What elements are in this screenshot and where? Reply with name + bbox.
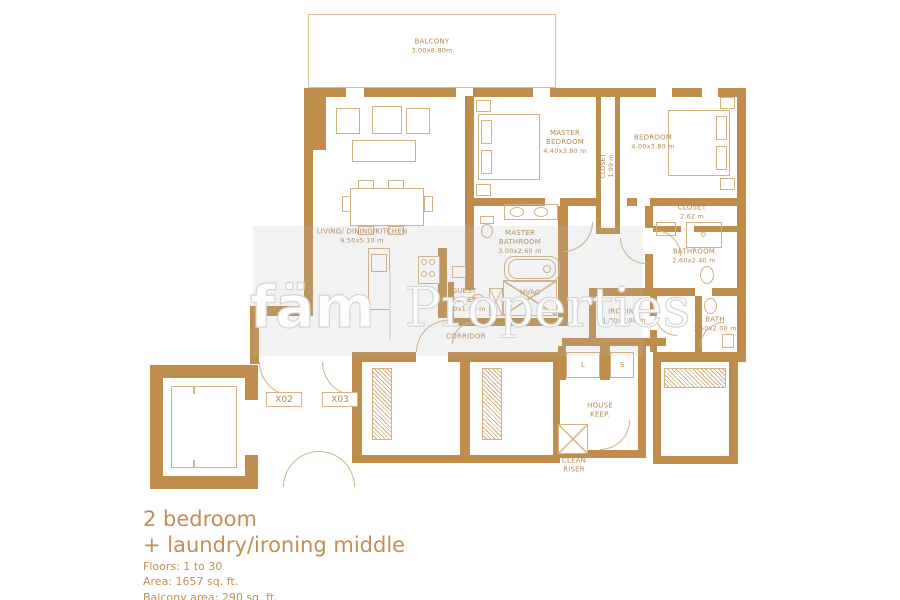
dining-chair <box>388 180 404 189</box>
master-bedroom-l1: MASTER <box>543 129 586 138</box>
unit-floors: Floors: 1 to 30 <box>143 559 405 575</box>
house-keep-l1: HOUSE <box>587 401 613 410</box>
wall <box>653 352 746 362</box>
dining-chair <box>424 196 433 212</box>
unit-area: Area: 1657 sq. ft. <box>143 574 405 590</box>
floor-plan: BALCONY 3.00x8.80m <box>0 0 900 600</box>
hatched-wardrobe <box>372 368 392 440</box>
bathroom-label: BATHROOM 2.60x2.40 m <box>672 248 715 265</box>
wall <box>550 88 656 97</box>
pillow <box>716 146 727 170</box>
elevator-door-line <box>193 386 195 394</box>
door-arc <box>600 420 630 450</box>
armchair <box>406 108 430 134</box>
wall <box>653 362 661 462</box>
elevator-door-opening <box>245 400 258 455</box>
elevator-door-line <box>193 460 195 468</box>
wall <box>465 96 474 200</box>
bedroom-name: BEDROOM <box>631 134 674 143</box>
elevator-car <box>171 386 237 468</box>
unit-plate-x03: X03 <box>322 392 358 407</box>
unit-title-line2: + laundry/ironing middle <box>143 532 405 558</box>
wall <box>470 455 560 463</box>
armchair <box>336 108 360 134</box>
unit-plate-x02: X02 <box>266 392 302 407</box>
door-arc <box>319 451 355 487</box>
wall <box>653 288 695 296</box>
clean-riser-box <box>558 424 588 454</box>
door-arc <box>322 362 356 396</box>
dining-chair <box>342 196 351 212</box>
unit-info: 2 bedroom + laundry/ironing middle Floor… <box>143 506 405 600</box>
closet1-dim: 1.99 m <box>608 153 616 178</box>
shower-head-icon <box>701 232 706 237</box>
balcony-dim: 3.00x8.80m <box>411 46 452 54</box>
door-arc <box>259 362 293 396</box>
bedroom-dim: 4.00x3.80 m <box>631 142 674 150</box>
wall <box>560 198 596 206</box>
house-keep-l2: KEEP. <box>587 410 613 419</box>
closet2-name: CLOSET <box>678 204 706 213</box>
dining-chair <box>358 180 374 189</box>
bathroom-name: BATHROOM <box>672 248 715 257</box>
watermark-panel <box>253 226 643 356</box>
house-keep-label: HOUSE KEEP. <box>587 401 613 419</box>
wall <box>712 288 746 296</box>
dining-table <box>350 188 424 226</box>
wall <box>352 455 470 463</box>
wall <box>737 88 746 362</box>
wall <box>645 206 653 228</box>
wall <box>627 198 637 206</box>
door-arc <box>283 451 319 487</box>
wall <box>729 362 738 464</box>
wall <box>650 296 657 316</box>
clean-riser-l1: CLEAN <box>562 456 586 465</box>
nightstand <box>720 97 735 109</box>
wall <box>638 346 646 458</box>
balcony-name: BALCONY <box>411 38 452 47</box>
closet1-label: CLOSET 1.99 m <box>600 153 616 178</box>
closet2-dim: 2.62 m <box>678 212 706 220</box>
master-bedroom-label: MASTER BEDROOM 4.40x3.80 m <box>543 129 586 155</box>
bath-name: BATH <box>693 316 736 325</box>
nightstand <box>476 100 491 112</box>
sink <box>722 334 734 348</box>
closet2-label: CLOSET 2.62 m <box>678 204 706 221</box>
wall <box>364 88 456 97</box>
unit-balcony-area: Balcony area: 290 sq. ft. <box>143 590 405 600</box>
wall <box>653 456 738 464</box>
nightstand <box>720 178 735 190</box>
coffee-table <box>372 106 402 134</box>
master-bedroom-dim: 4.40x3.80 m <box>543 147 586 155</box>
toilet-bowl <box>704 298 717 314</box>
clean-riser-label: CLEAN RISER <box>562 456 586 474</box>
bath-label: BATH 1.50x2.00 m <box>693 316 736 333</box>
bath-dim: 1.50x2.00 m <box>693 324 736 332</box>
master-bedroom-l2: BEDROOM <box>543 138 586 147</box>
wall <box>473 88 533 97</box>
sink <box>534 207 548 217</box>
wall <box>313 96 326 150</box>
pillow <box>481 150 492 174</box>
door-arc <box>655 314 677 336</box>
hatched-wardrobe <box>482 368 502 440</box>
balcony-label: BALCONY 3.00x8.80m <box>411 38 452 55</box>
nightstand <box>476 184 491 196</box>
wall <box>460 352 470 462</box>
pillow <box>716 116 727 140</box>
sofa <box>352 140 416 162</box>
sink-counter <box>656 222 676 236</box>
hatched-wardrobe <box>664 368 726 388</box>
bedroom-label: BEDROOM 4.00x3.80 m <box>631 134 674 151</box>
sink <box>510 207 524 217</box>
pillow <box>481 120 492 144</box>
bathroom-dim: 2.60x2.40 m <box>672 256 715 264</box>
toilet-bowl <box>700 266 714 284</box>
unit-title-line1: 2 bedroom <box>143 506 405 532</box>
clean-riser-l2: RISER <box>562 465 586 474</box>
wall <box>672 88 702 97</box>
toilet <box>480 216 494 224</box>
